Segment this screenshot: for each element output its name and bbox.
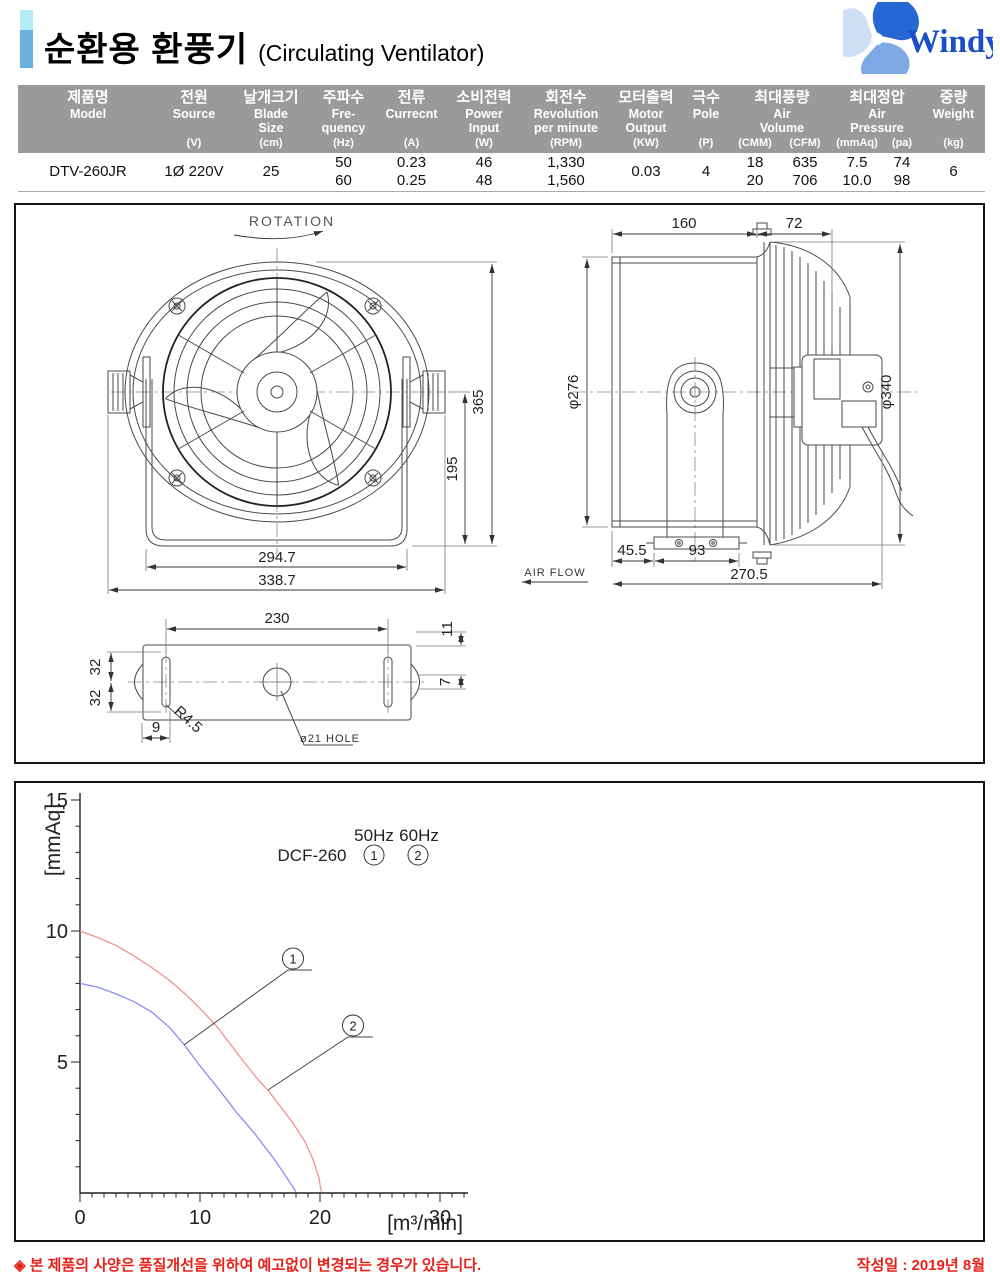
cell-motor-output: 0.03 [612,153,680,191]
hole-21-label: ø21 HOLE [300,733,360,745]
performance-chart: 010203051015 [mmAq] [m³/min] 50Hz 60Hz D… [16,783,979,1236]
svg-text:0: 0 [74,1207,85,1229]
cell-current: 0.230.25 [375,153,448,191]
cell-pole: 4 [680,153,732,191]
col-header-frequency: 주파수 Fre-quency (Hz) [312,85,375,153]
technical-drawing-panel: ROTATION [14,203,985,764]
x-axis-label: [m³/min] [387,1212,463,1235]
dim-338-7: 338.7 [258,572,296,589]
front-view: ROTATION [108,213,497,594]
dim-7: 7 [437,678,454,686]
y-axis-label: [mmAq] [42,804,65,876]
dim-dia-276: φ276 [565,375,582,410]
cell-air-volume-cfm: 635706 [778,153,832,191]
svg-text:10: 10 [46,921,68,943]
spec-table-header: 제품명 Model 전원 Source (V) 날개크기 BladeSize (… [18,85,985,153]
page-title: 순환용 환풍기 (Circulating Ventilator) [44,22,484,71]
dim-11: 11 [439,621,456,637]
footer-date: 작성일 : 2019년 8월 [857,1254,985,1275]
footer-note: ◈ 본 제품의 사양은 품질개선을 위하여 예고없이 변경되는 경우가 있습니다… [14,1254,481,1275]
svg-text:20: 20 [309,1207,331,1229]
title-accent-bar [20,10,33,68]
col-header-power-input: 소비전력 PowerInput (W) [448,85,520,153]
dim-270-5: 270.5 [730,566,768,583]
power-cable [862,427,913,516]
dim-72: 72 [786,215,803,232]
dim-32-upper: 32 [87,659,104,676]
col-header-model: 제품명 Model [18,85,158,153]
dim-365: 365 [470,389,487,414]
radius-r4-5-label: R4.5 [171,703,206,737]
col-header-air-pressure: 최대정압 AirPressure (mmAq)(pa) [832,85,922,153]
guard-bolts [753,223,771,564]
dim-230: 230 [264,610,289,627]
windy-logo: Windy [843,2,993,74]
col-header-current: 전류 Currecnt (A) [375,85,448,153]
col-header-pole: 극수 Pole (P) [680,85,732,153]
cell-frequency: 5060 [312,153,375,191]
col-header-blade-size: 날개크기 BladeSize (cm) [230,85,312,153]
legend-60hz: 60Hz [399,826,439,845]
technical-drawing: ROTATION [16,205,979,758]
cell-source: 1Ø 220V [158,153,230,191]
air-flow-label: AIR FLOW [524,567,585,579]
cell-air-volume-cmm: 1820 [732,153,778,191]
cell-rpm: 1,3301,560 [520,153,612,191]
dim-9: 9 [152,719,160,736]
svg-text:2: 2 [349,1019,356,1034]
legend-mark-2: 2 [414,848,421,863]
col-header-rpm: 회전수 Revolutionper minute (RPM) [520,85,612,153]
chart-axes-and-series: 010203051015 [46,790,468,1229]
cell-power-input: 4648 [448,153,520,191]
dim-195: 195 [444,456,461,481]
chart-legend: 50Hz 60Hz DCF-260 1 2 [278,826,439,865]
page-title-english: (Circulating Ventilator) [258,40,484,67]
svg-text:1: 1 [289,952,296,967]
rotation-label: ROTATION [249,213,335,229]
col-header-weight: 중량 Weight (kg) [922,85,985,153]
page-title-korean: 순환용 환풍기 [44,22,248,71]
datasheet-page: 순환용 환풍기 (Circulating Ventilator) Windy 제… [0,0,1000,1281]
svg-text:10: 10 [189,1207,211,1229]
dim-45-5: 45.5 [617,542,646,559]
cell-air-pressure-mmaq: 7.510.0 [832,153,882,191]
rotation-arrow [234,231,323,239]
dim-dia-340: φ340 [878,375,895,410]
legend-mark-1: 1 [370,848,377,863]
col-header-motor-output: 모터출력 MotorOutput (KW) [612,85,680,153]
legend-50hz: 50Hz [354,826,394,845]
side-view: 160 72 φ276 φ340 45.5 93 270.5 AIR FLOW [522,215,921,589]
svg-text:5: 5 [57,1052,68,1074]
legend-model: DCF-260 [278,846,347,865]
cell-air-pressure-pa: 7498 [882,153,922,191]
dim-160: 160 [671,215,696,232]
cell-weight: 6 [922,153,985,191]
dim-93: 93 [689,542,706,559]
dim-32-lower: 32 [87,690,104,707]
callout-curve-1: 1 [184,948,312,1045]
spec-table: 제품명 Model 전원 Source (V) 날개크기 BladeSize (… [18,85,985,192]
col-header-source: 전원 Source (V) [158,85,230,153]
col-header-air-volume: 최대풍량 AirVolume (CMM)(CFM) [732,85,832,153]
logo-wordmark: Windy [907,24,993,60]
cell-model: DTV-260JR [18,153,158,191]
base-plate-view: 230 32 32 9 R4.5 11 7 ø21 HOLE [87,610,466,745]
cell-blade-size: 25 [230,153,312,191]
callout-curve-2: 2 [268,1015,373,1090]
dim-294-7: 294.7 [258,549,296,566]
spec-table-row: DTV-260JR 1Ø 220V 25 5060 0.230.25 4648 … [18,153,985,192]
performance-chart-panel: 010203051015 [mmAq] [m³/min] 50Hz 60Hz D… [14,781,985,1242]
